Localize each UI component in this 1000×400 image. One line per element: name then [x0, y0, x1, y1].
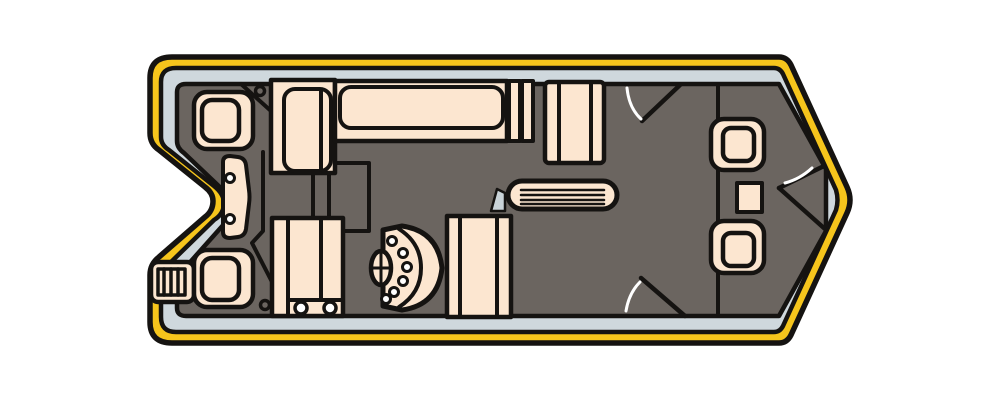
helm-gauge-5 — [390, 288, 399, 297]
corner-bench-arm — [271, 80, 335, 173]
port-side-bench — [335, 81, 507, 141]
bow-table — [737, 183, 762, 212]
helm-gauge-3 — [403, 263, 412, 272]
canvas — [0, 0, 1000, 400]
transom-panel — [223, 156, 250, 238]
helm-gauge-4 — [399, 277, 408, 286]
bench-armrest-slat-1 — [509, 81, 520, 141]
bench-armrest-slat-2 — [522, 81, 533, 141]
helm-gauge-6 — [382, 295, 391, 304]
deck-fitting-top — [256, 87, 265, 96]
helm-gauge-2 — [399, 249, 408, 258]
aft-bench-group — [272, 218, 343, 316]
cupholder-right — [324, 302, 336, 314]
chaise-lounge — [545, 82, 604, 163]
transom-bolt-bottom — [226, 215, 235, 224]
transom-bolt-top — [226, 174, 235, 183]
boat-plan-illustration — [0, 0, 1000, 400]
captain-chair — [447, 216, 511, 317]
helm-gauge-1 — [388, 237, 397, 246]
cupholder-left — [295, 302, 307, 314]
deck-fitting-bottom — [261, 301, 270, 310]
